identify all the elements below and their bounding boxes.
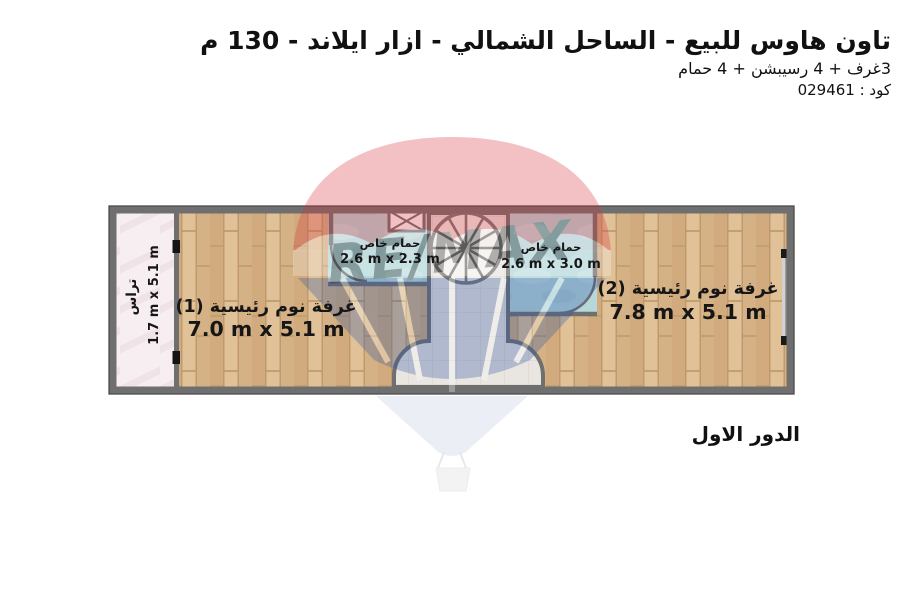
balloon-cone <box>376 396 528 456</box>
bathroom1-label: حمام خاص <box>360 236 421 250</box>
bedroom1-dims: 7.0 m x 5.1 m <box>187 317 344 341</box>
floor-name-label: الدور الاول <box>692 422 800 446</box>
terrace-door-marker-bottom <box>173 351 181 364</box>
balloon-basket <box>436 468 470 491</box>
bedroom2-dims: 7.8 m x 5.1 m <box>609 300 766 324</box>
terrace-door-marker-top <box>173 240 181 253</box>
bedroom2-label: غرفة نوم رئيسية (2) <box>597 279 778 299</box>
floor-plan: RE/MAX حمام خاص 2.6 m x 2.3 m حمام خاص 2… <box>0 0 900 599</box>
bathroom2-dims: 2.6 m x 3.0 m <box>501 257 601 272</box>
bathroom2-label: حمام خاص <box>521 240 582 254</box>
floorplan-page: { "header": { "title": "تاون هاوس للبيع … <box>0 0 900 599</box>
bedroom1-label: غرفة نوم رئيسية (1) <box>175 297 356 317</box>
terrace-label: تراس <box>124 279 140 316</box>
terrace-dims: 1.7 m x 5.1 m <box>147 245 162 345</box>
bathroom1-dims: 2.6 m x 2.3 m <box>340 252 440 267</box>
